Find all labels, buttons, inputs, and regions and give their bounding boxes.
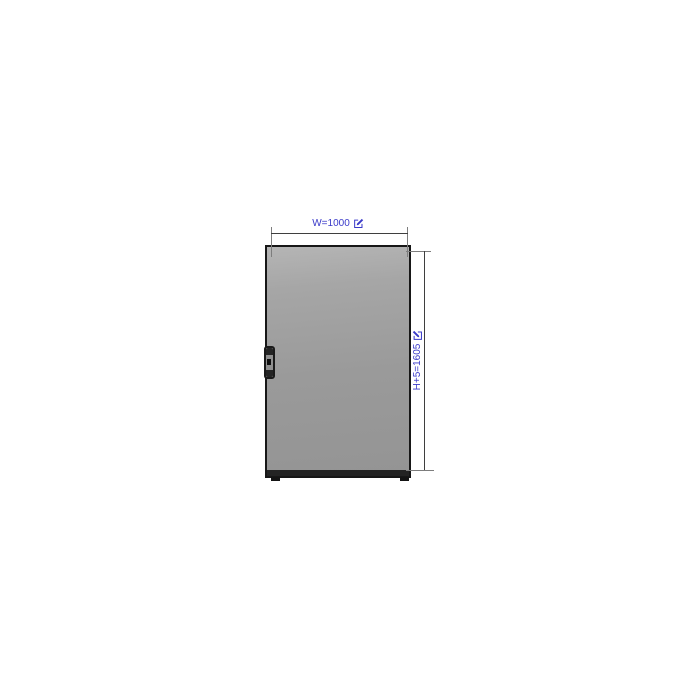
drawing-canvas: W=1000 H+5=1605 [0,0,700,700]
panel-foot-left [271,477,280,481]
height-dimension-text: H+5=1605 [412,344,423,391]
panel-foot-right [400,477,409,481]
door-panel[interactable] [265,245,411,478]
height-extension-line-bottom [406,470,434,471]
height-dimension-line [424,251,425,470]
height-dimension-label-inner: H+5=1605 [412,330,423,391]
edit-icon[interactable] [353,218,364,229]
hinge-knuckle-top [266,348,273,355]
width-dimension-text: W=1000 [312,218,350,229]
hinge-knuckle-bottom [266,370,273,377]
width-extension-line-left [271,227,272,257]
hinge-pin [267,359,271,365]
hinge[interactable] [264,346,275,379]
height-extension-line-top [406,251,431,252]
width-dimension-label[interactable]: W=1000 [265,217,411,229]
width-extension-line-right [407,227,408,257]
edit-icon[interactable] [412,330,423,341]
width-dimension-line [271,233,408,234]
panel-bottom-plinth [267,470,409,476]
